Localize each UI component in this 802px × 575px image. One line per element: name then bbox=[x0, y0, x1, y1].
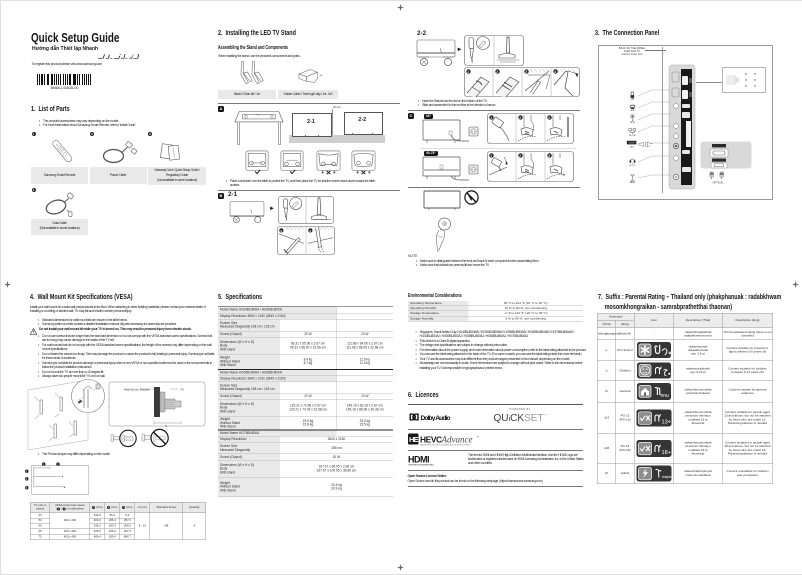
svg-text:USB: USB bbox=[630, 99, 634, 100]
svg-text:HDMI: HDMI bbox=[630, 110, 635, 111]
svg-text:3: 3 bbox=[525, 70, 527, 74]
svg-text:13+: 13+ bbox=[662, 419, 672, 425]
svg-text:2: 2 bbox=[496, 70, 498, 74]
svg-text:1: 1 bbox=[467, 70, 469, 74]
svg-text:nnu: nnu bbox=[661, 393, 670, 399]
svg-text:TV: TV bbox=[180, 387, 184, 391]
svg-text:2: 2 bbox=[519, 154, 521, 158]
svg-text:3: 3 bbox=[548, 154, 550, 158]
svg-text:HE: HE bbox=[409, 435, 419, 444]
svg-text:AV IN: AV IN bbox=[630, 121, 635, 123]
svg-text:1: 1 bbox=[490, 154, 492, 158]
svg-text:HEVC: HEVC bbox=[420, 434, 442, 444]
svg-text:Wall Mount Bracket: Wall Mount Bracket bbox=[124, 387, 150, 391]
svg-text:Dolby Audio: Dolby Audio bbox=[421, 414, 451, 420]
svg-text:2: 2 bbox=[519, 116, 521, 120]
svg-text:1: 1 bbox=[490, 116, 492, 120]
svg-text:EX-LINK: EX-LINK bbox=[628, 134, 635, 135]
svg-text:HDMI: HDMI bbox=[408, 454, 429, 464]
svg-text:chapho: chapho bbox=[662, 475, 672, 479]
svg-text:OPTICAL: OPTICAL bbox=[712, 181, 724, 185]
svg-text:ANT IN: ANT IN bbox=[629, 181, 635, 183]
svg-text:LAUNCHED BY HEVC ADVANCED TECH: LAUNCHED BY HEVC ADVANCED TECHNOLOGIES bbox=[420, 444, 471, 447]
svg-text:LAN: LAN bbox=[630, 145, 634, 148]
svg-text:HIGH-DEFINITION MULTIMEDIA INT: HIGH-DEFINITION MULTIMEDIA INTERFACE bbox=[408, 463, 435, 466]
svg-text:3: 3 bbox=[280, 229, 282, 233]
svg-text:HP OUT: HP OUT bbox=[629, 165, 635, 166]
svg-text:4: 4 bbox=[554, 70, 556, 74]
svg-text:18+: 18+ bbox=[662, 450, 672, 456]
svg-text:™: ™ bbox=[476, 435, 479, 439]
svg-text:4: 4 bbox=[309, 229, 311, 233]
svg-text:Advance: Advance bbox=[441, 434, 473, 444]
svg-text:3: 3 bbox=[548, 116, 550, 120]
